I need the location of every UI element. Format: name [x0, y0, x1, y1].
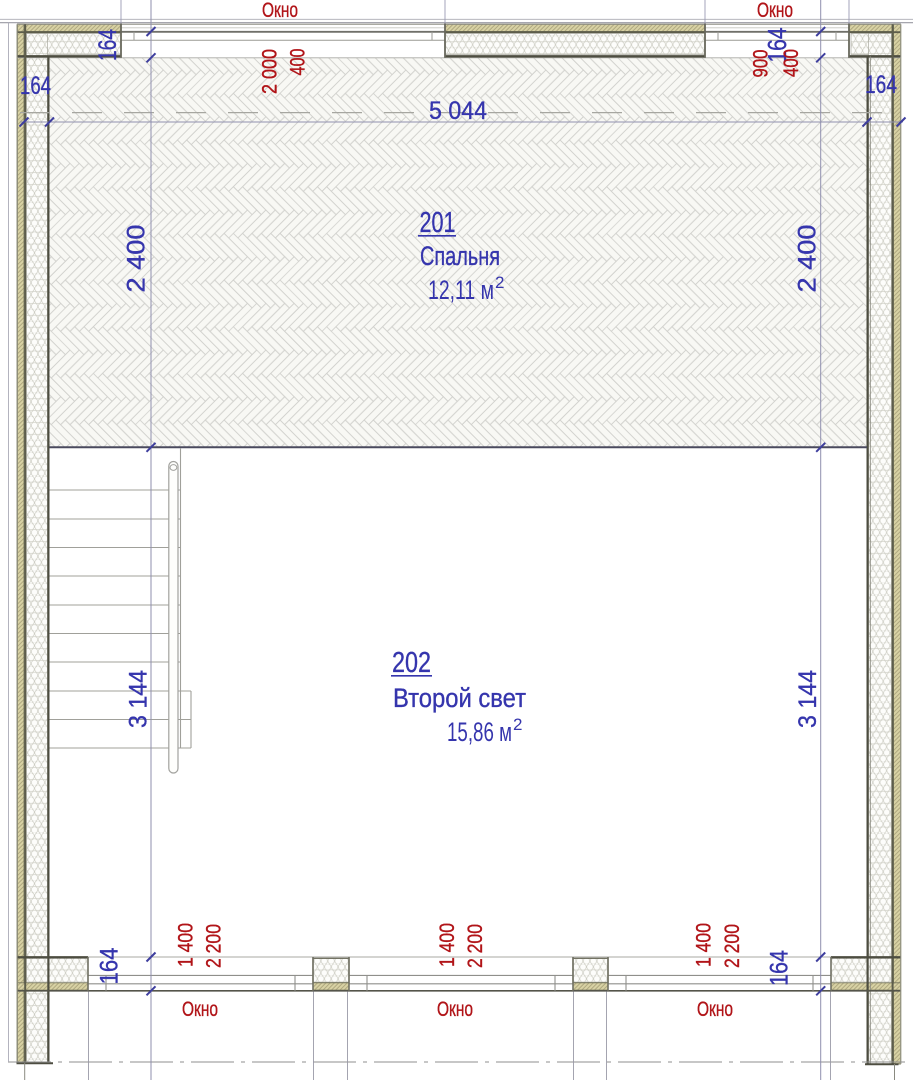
svg-text:2 400: 2 400 — [794, 225, 822, 293]
svg-text:164: 164 — [94, 29, 122, 61]
svg-text:5 044: 5 044 — [429, 97, 487, 125]
svg-text:3 144: 3 144 — [125, 670, 153, 728]
svg-text:202: 202 — [392, 647, 431, 679]
svg-text:2 200: 2 200 — [203, 924, 226, 968]
svg-text:164: 164 — [865, 71, 897, 99]
svg-text:164: 164 — [766, 950, 794, 986]
svg-text:12,11 м: 12,11 м — [428, 275, 494, 305]
svg-text:Спальня: Спальня — [420, 241, 500, 271]
svg-text:3 144: 3 144 — [794, 670, 822, 728]
svg-text:2: 2 — [513, 715, 522, 734]
svg-text:400: 400 — [287, 49, 310, 76]
svg-text:2 400: 2 400 — [123, 225, 151, 293]
svg-text:Окно: Окно — [182, 998, 218, 1021]
svg-text:15,86 м: 15,86 м — [447, 717, 512, 747]
svg-text:2 000: 2 000 — [259, 49, 282, 94]
svg-text:201: 201 — [420, 207, 456, 239]
svg-text:1 400: 1 400 — [693, 923, 716, 967]
svg-text:Окно: Окно — [262, 0, 298, 22]
svg-text:Второй свет: Второй свет — [393, 683, 526, 713]
svg-text:1 400: 1 400 — [175, 923, 198, 967]
svg-text:164: 164 — [20, 72, 51, 100]
svg-text:900: 900 — [750, 50, 773, 78]
svg-text:Окно: Окно — [697, 998, 733, 1021]
svg-text:1 400: 1 400 — [436, 923, 459, 967]
svg-text:164: 164 — [96, 947, 124, 984]
svg-text:2: 2 — [495, 273, 504, 292]
svg-text:2 200: 2 200 — [464, 924, 487, 968]
svg-text:Окно: Окно — [437, 998, 473, 1021]
svg-text:2 200: 2 200 — [721, 924, 744, 968]
svg-text:400: 400 — [780, 49, 803, 77]
svg-text:Окно: Окно — [757, 0, 793, 22]
